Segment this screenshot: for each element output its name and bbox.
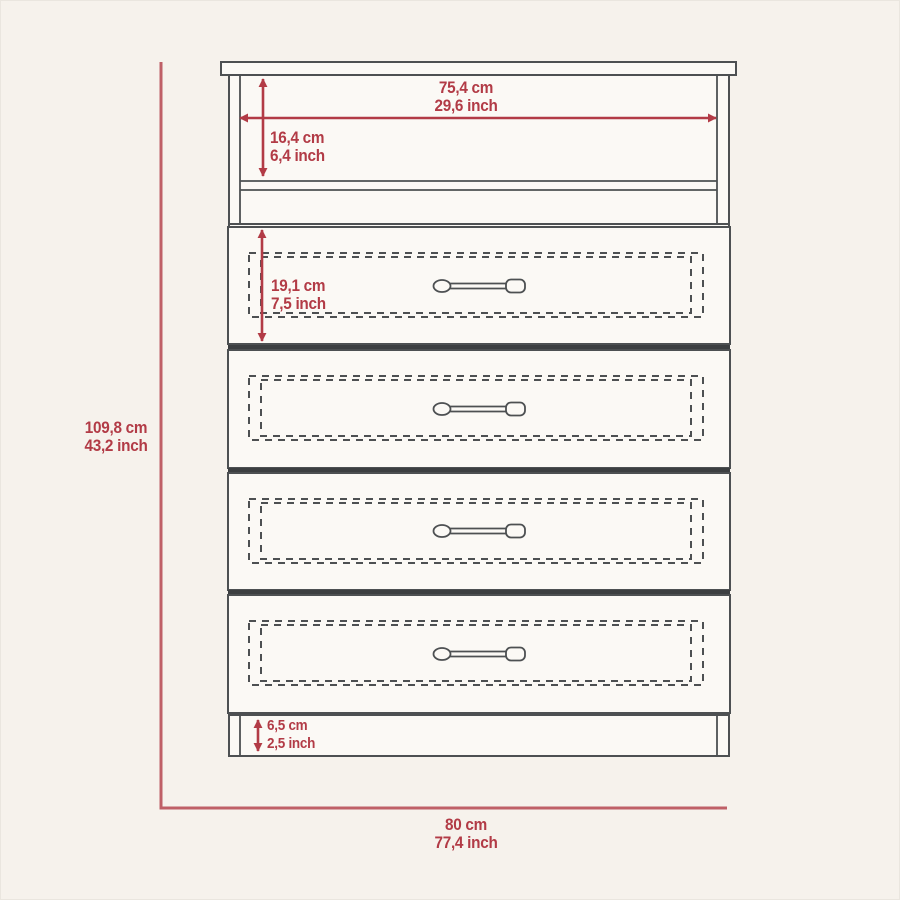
drawer-height-cm: 19,1 cm bbox=[271, 277, 326, 295]
drawer-4-front bbox=[228, 595, 730, 713]
base-height-inch: 2,5 inch bbox=[267, 735, 315, 753]
handle-left-knob bbox=[434, 280, 451, 292]
handle-left-knob bbox=[434, 403, 451, 415]
base-height-label: 6,5 cm 2,5 inch bbox=[267, 717, 315, 753]
overall-width-cm: 80 cm bbox=[408, 816, 525, 834]
drawer-height-inch: 7,5 inch bbox=[271, 295, 326, 313]
top-compartment-height-cm: 16,4 cm bbox=[270, 129, 325, 147]
drawer-2-front bbox=[228, 350, 730, 468]
drawer-4 bbox=[228, 595, 730, 713]
top-board bbox=[221, 62, 736, 75]
drawer-3-front bbox=[228, 473, 730, 590]
top-compartment-height-label: 16,4 cm 6,4 inch bbox=[270, 129, 325, 165]
inner-width-cm: 75,4 cm bbox=[412, 79, 520, 97]
overall-width-inch: 77,4 inch bbox=[408, 834, 525, 852]
dimension-diagram: 75,4 cm 29,6 inch 16,4 cm 6,4 inch 19,1 … bbox=[0, 0, 900, 900]
inner-width-label: 75,4 cm 29,6 inch bbox=[412, 79, 520, 115]
inner-width-inch: 29,6 inch bbox=[412, 97, 520, 115]
handle-right-knob bbox=[506, 280, 525, 293]
dresser-outline bbox=[221, 62, 736, 757]
drawer-2 bbox=[228, 350, 730, 468]
handle-left-knob bbox=[434, 525, 451, 537]
top-compartment-height-inch: 6,4 inch bbox=[270, 147, 325, 165]
handle-left-knob bbox=[434, 648, 451, 660]
drawer-3 bbox=[228, 473, 730, 590]
overall-width-label: 80 cm 77,4 inch bbox=[408, 816, 525, 852]
overall-height-label: 109,8 cm 43,2 inch bbox=[76, 419, 155, 455]
handle-right-knob bbox=[506, 525, 525, 538]
overall-height-inch: 43,2 inch bbox=[76, 437, 155, 455]
handle-right-knob bbox=[506, 403, 525, 416]
drawer-height-label: 19,1 cm 7,5 inch bbox=[271, 277, 326, 313]
handle-right-knob bbox=[506, 648, 525, 661]
base-height-cm: 6,5 cm bbox=[267, 717, 315, 735]
overall-height-cm: 109,8 cm bbox=[76, 419, 155, 437]
